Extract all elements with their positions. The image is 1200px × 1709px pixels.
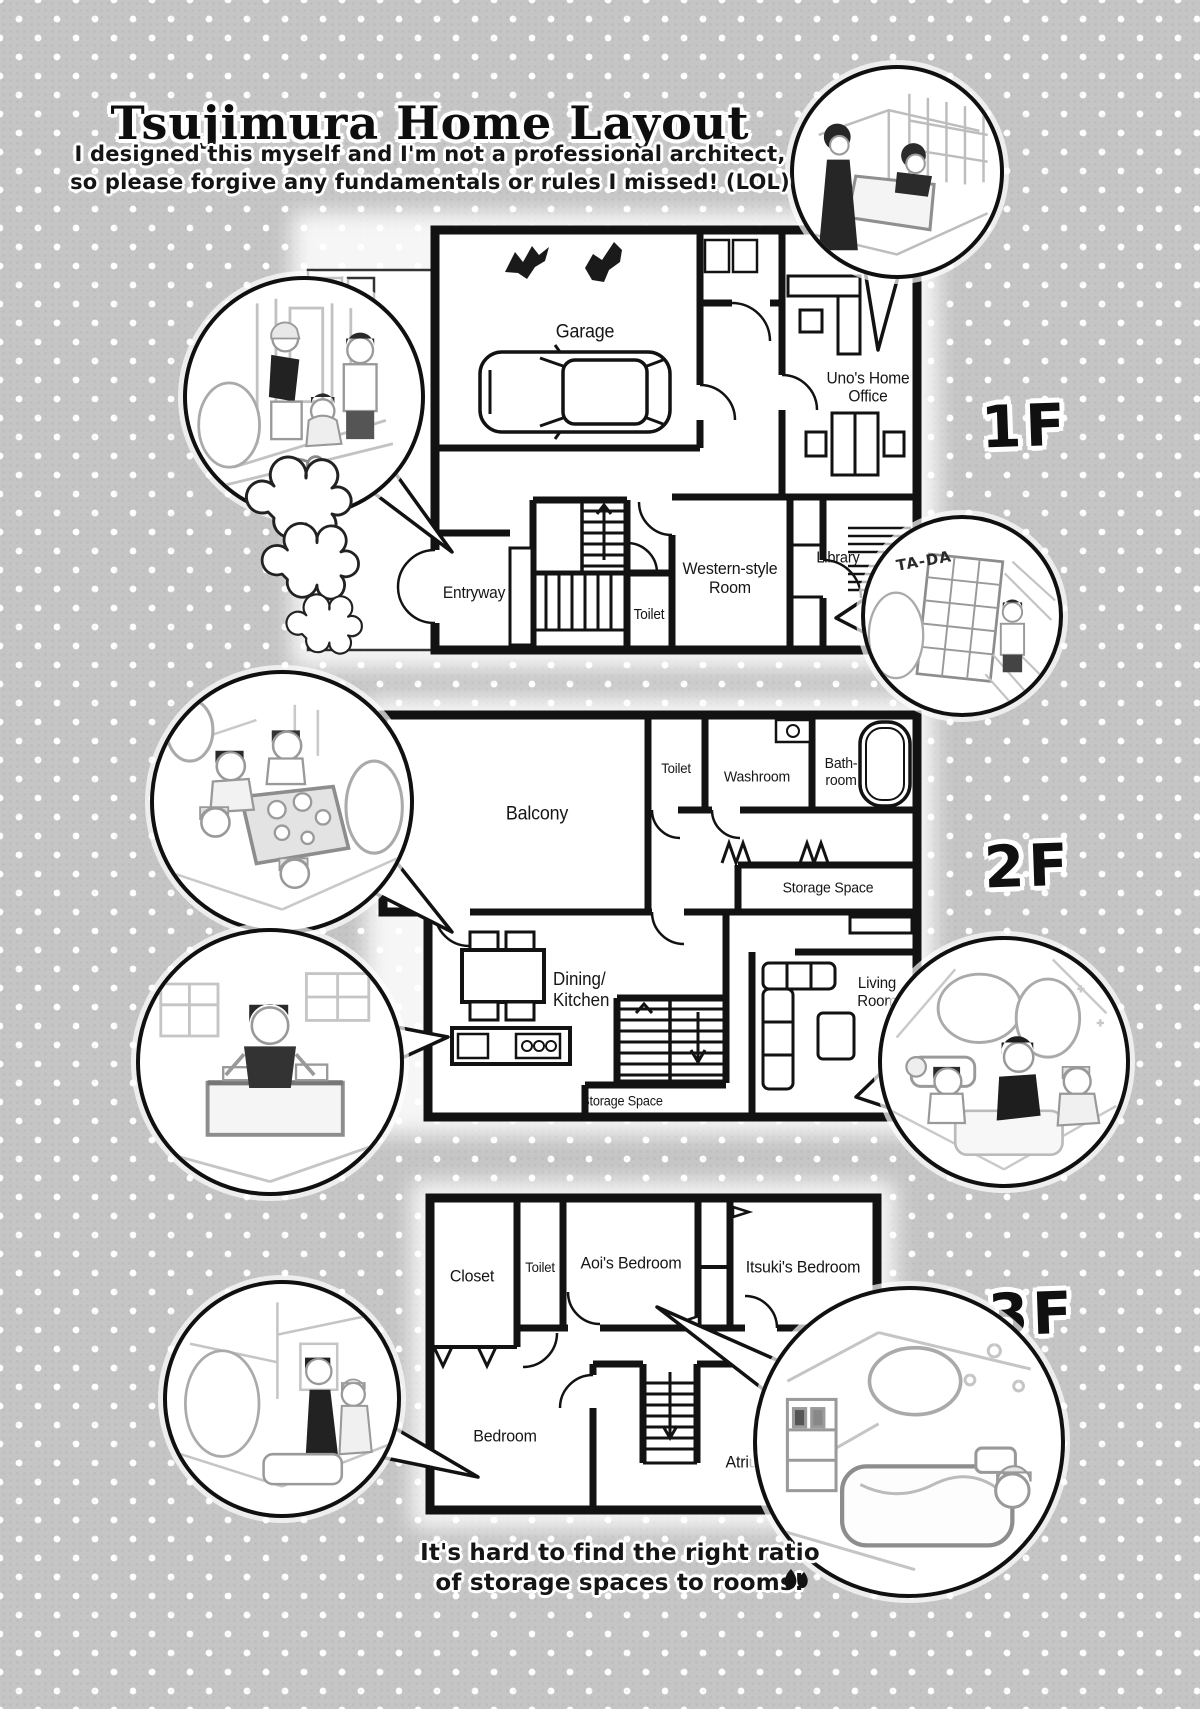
sitting-figure-body [895, 172, 932, 197]
figure3-face [201, 808, 229, 836]
speech-bubble [869, 1348, 960, 1415]
speech-bubble [938, 974, 1021, 1042]
subtitle-line1: I designed this myself and I'm not a pro… [60, 142, 800, 166]
room-label-balcony: Balcony [506, 803, 568, 824]
sweat-drop-icon [782, 1566, 812, 1596]
standing-figure-face [830, 136, 849, 155]
standing-figure-body [819, 160, 858, 251]
figure3-shirt [344, 364, 377, 411]
figure1-face [934, 1068, 961, 1095]
cushion-sketch [906, 1057, 926, 1077]
living-inset [878, 936, 1130, 1188]
bookshelf-sketch [917, 554, 1003, 681]
room-label-toilet-2f: Toilet [661, 761, 691, 777]
room-label-aoi-bedroom: Aoi's Bedroom [581, 1253, 682, 1272]
room-label-dining-kitchen: Dining/ Kitchen [553, 969, 609, 1011]
room-label-office: Uno's Home Office [815, 370, 920, 407]
figure2-body [340, 1406, 372, 1454]
room-label-western: Western-style Room [669, 559, 791, 597]
figure3-face [1064, 1068, 1091, 1095]
entryway-inset [183, 276, 425, 518]
speech-bubble [869, 593, 923, 678]
speech-bubble [199, 383, 260, 467]
figure1-skirt [271, 402, 301, 439]
counter-sketch [208, 1083, 343, 1135]
room-label-bedroom: Bedroom [473, 1426, 537, 1445]
figure1-shirt [269, 355, 299, 402]
figure2-body [306, 416, 341, 446]
figure1-face [306, 1359, 331, 1384]
floor1-label: 1F [980, 390, 1070, 461]
cook-apron [244, 1046, 296, 1088]
bedroom-inset [163, 1280, 401, 1518]
figure1-body [928, 1094, 965, 1123]
figure2-body [267, 758, 305, 784]
hall-shelf [705, 240, 729, 272]
office-inset [790, 65, 1004, 279]
subtitle-line2: so please forgive any fundamentals or ru… [60, 170, 800, 194]
figure3-body [1058, 1094, 1099, 1126]
room-label-storage-upper: Storage Space [783, 881, 874, 898]
figure4-face [281, 860, 309, 888]
hall-shelf [733, 240, 757, 272]
figure2-shirt [997, 1074, 1041, 1120]
washbasin [776, 720, 810, 742]
figure3-shorts [346, 411, 374, 439]
room-label-garage: Garage [556, 321, 614, 342]
room-label-entryway: Entryway [443, 584, 505, 602]
room-label-toilet-1f: Toilet [634, 607, 665, 623]
room-label-storage-lower: Storage Space [581, 1093, 663, 1108]
figure-shorts [1003, 655, 1022, 672]
figure-face [1003, 602, 1022, 621]
speech-bubble [346, 761, 402, 853]
room-label-itsuki-bedroom: Itsuki's Bedroom [746, 1257, 861, 1276]
low-table-sketch [264, 1454, 342, 1484]
shelf-sketch [787, 1399, 836, 1490]
room-label-closet: Closet [450, 1266, 494, 1285]
speech-bubble [185, 1351, 259, 1457]
figure2-face [342, 1383, 365, 1406]
bathtub [860, 722, 910, 806]
footer-line1: It's hard to find the right ratio [260, 1540, 980, 1566]
footer-line2: of storage spaces to rooms! [260, 1570, 980, 1596]
room-label-library: Library [816, 549, 859, 566]
entry-shoe-closet [510, 548, 532, 645]
room-label-washroom: Washroom [724, 770, 790, 787]
kitchen-counter [452, 1028, 570, 1064]
room-label-dining-line2: Kitchen [553, 990, 609, 1011]
sitting-figure-face [906, 154, 925, 173]
figure2-face [273, 732, 301, 760]
lying-figure-face [996, 1474, 1029, 1507]
library-inset: TA-DA [861, 515, 1063, 717]
floor2-label: 2F [983, 830, 1073, 901]
figure-shirt [1001, 624, 1024, 655]
kitchen-inset [136, 928, 404, 1196]
dog-head-sketch [308, 457, 324, 473]
room-label-dining-line1: Dining/ [553, 969, 609, 990]
room-label-bathroom: Bath-room [818, 756, 865, 790]
room-label-toilet-3f: Toilet [525, 1260, 555, 1276]
dining-inset [150, 670, 414, 934]
figure1-face [217, 752, 245, 780]
cook-face [252, 1007, 288, 1043]
entrance-opening [427, 550, 442, 623]
car-icon [480, 345, 670, 439]
figure2-face [1004, 1042, 1033, 1071]
futon-sketch [842, 1466, 1012, 1545]
figure3-face [347, 337, 373, 363]
